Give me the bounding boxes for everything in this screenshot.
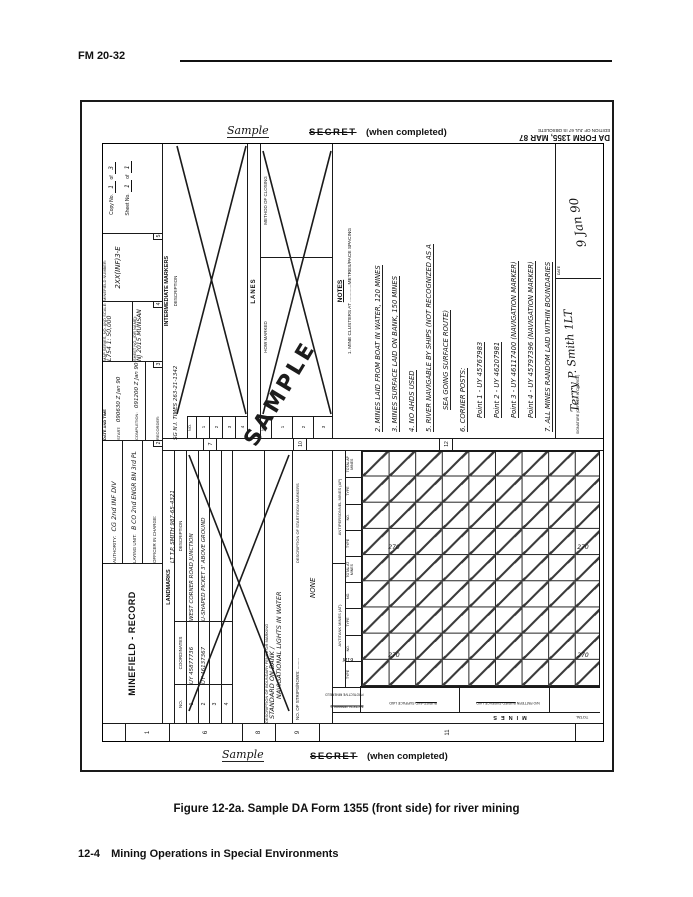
copy-label: Copy No. — [109, 194, 115, 215]
band-sec-1: 1 — [126, 724, 170, 741]
completion-label: COMPLETION: — [134, 412, 139, 440]
mines-col-label: TYPE — [346, 477, 361, 503]
mines-stub-cell-2: N/O PATTERN BURIED SURFACE LAID — [473, 698, 543, 704]
page-footer: 12-4 Mining Operations in Special Enviro… — [78, 848, 338, 860]
lanes-header: LANES — [248, 144, 261, 438]
minefield-number-label: MINEFIELD NUMBER: — [103, 234, 107, 301]
note-line: 7. ALL MINES RANDOM LAID WITHIN BOUNDARI… — [545, 262, 553, 432]
mines-col-label: TYPE — [346, 530, 361, 556]
landmark-row: 2 UY 46137367 U-SHAPED PICKET 3' ABOVE G… — [199, 451, 211, 723]
lanes-col-method: METHOD OF CLOSING — [261, 144, 333, 258]
boundary-section: DESCRIPTION OF BOUNDARY FENCE OR MARKING… — [265, 451, 293, 723]
start-row-markers-label: DESCRIPTION OF START/ROW MARKERS — [296, 483, 300, 563]
note-line: Point 4 - UY 45797396 (NAVIGATION MARKER… — [528, 261, 536, 418]
sheet-label: Sheet No. — [125, 193, 131, 215]
form-title: MINEFIELD - RECORD — [127, 564, 137, 723]
recorder-label: RECORDER: — [155, 416, 160, 440]
completion-value: 091200 Z Jan 90 — [134, 362, 140, 408]
boundary-value-2: NAVIGATIONAL LIGHTS IN WATER — [276, 451, 283, 699]
mines-stub-header-2: PROTECTIVE MINEFIELD — [332, 691, 364, 696]
mines-type-value: M19 — [339, 659, 357, 669]
lane-row-no: 2 — [292, 416, 313, 438]
sec-2-number: 2 — [153, 440, 163, 447]
signature-strip: Terry P. Smith 1LT SIGNATURE (OFFICER IN… — [555, 144, 600, 438]
intermediate-markers-header: INTERMEDIATE MARKERS — [165, 144, 171, 438]
mines-col-label: TOTAL AT MINES — [346, 556, 361, 582]
landmark-row-coordinates: UY 45877736 — [187, 621, 199, 684]
landmark-row-no: 4 — [222, 684, 234, 723]
sec-5-number: 5 — [153, 233, 163, 240]
copy-total: 3 — [108, 162, 116, 174]
when-completed-bottom: (when completed) — [367, 751, 448, 762]
mines-col-label: NO. — [346, 504, 361, 530]
form-title-cell: MINEFIELD - RECORD — [103, 563, 163, 723]
header-rule — [180, 60, 612, 62]
intermediate-markers-col-description: DESCRIPTION — [174, 144, 179, 438]
sec-7-number: 7 — [203, 438, 217, 450]
landmark-row-no: 1 — [187, 684, 199, 723]
secret-stamp-bottom: SECRET — [310, 751, 358, 762]
footer-title: Mining Operations in Special Environment… — [111, 848, 338, 860]
note-line: Point 1 - UY 45767983 — [477, 342, 485, 418]
doc-reference: FM 20-32 — [78, 50, 125, 62]
laying-unit-value: B CO 2nd ENGR BN 3rd PL — [131, 451, 138, 530]
mines-col-label: TYPE — [346, 608, 361, 634]
authority-cell: AUTHORITY: CG 2nd INF DIV LAYING UNIT: B… — [103, 440, 163, 563]
note-line: 2. MINES LAID FROM BOAT IN WATER, 120 MI… — [375, 265, 383, 432]
mines-col-label: NO. — [346, 582, 361, 608]
mines-stub-header-1: TACTICAL MINEFIELD — [332, 703, 364, 708]
note-line: 6. CORNER POSTS: — [460, 368, 468, 432]
date-cell: DATE 9 Jan 90 — [556, 144, 601, 278]
mines-total-value: 270 — [571, 653, 595, 665]
strips-section: NO. OF STRIPS/ROWS: ......... DESCRIPTIO… — [293, 451, 333, 723]
mines-col-label: TOTAL AP MINES — [346, 451, 361, 477]
mines-stub-col: TACTICAL MINEFIELD PROTECTIVE MINEFIELD … — [333, 687, 600, 713]
landmarks-header: LANDMARKS — [163, 451, 175, 723]
landmarks-col-coordinates: COORDINATES — [175, 621, 187, 684]
note-line: Point 2 - UY 46207981 — [494, 342, 502, 418]
landmark-row-no: 2 — [199, 684, 211, 723]
mines-value: 270 — [382, 545, 406, 557]
da-form-number: DA FORM 1355, MAR 87 — [470, 133, 610, 142]
minefield-number-value: 2XX(INF)3-E — [115, 234, 122, 301]
landmark-row-no: 3 — [210, 684, 222, 723]
landmarks-col-description: DESCRIPTION — [175, 451, 187, 621]
landmark-row: 3 — [210, 451, 222, 723]
marker-row-no: 1 — [196, 416, 209, 438]
map-series-value: L754 1: 50,000 — [107, 301, 113, 361]
notes-lines: 2. MINES LAID FROM BOAT IN WATER, 120 MI… — [367, 148, 554, 432]
mines-section: MINES TOTAL TACTICAL MINEFIELD PROTECTIV… — [333, 451, 600, 723]
mines-stub-cell-1: BURIED AND SURFACE LAID — [378, 698, 448, 704]
note-line: SEA GOING SURFACE ROUTE) — [443, 310, 451, 410]
marker-row-no: 2 — [209, 416, 222, 438]
band-sec-11: 11 — [320, 724, 576, 741]
mines-group-ap: ANTIPERSONNEL MINES (AP) — [333, 451, 346, 563]
notes-section: NOTES 1. MINE CLUSTERS AT .............M… — [333, 144, 600, 438]
authority-value: CG 2nd INF DIV — [110, 481, 118, 531]
datetime-cell: DATE AND TIME START: 090630 Z Jan 90 COM… — [103, 361, 163, 440]
sample-stamp-top: Sample — [227, 124, 269, 138]
band-sec-6: 6 — [170, 724, 243, 741]
note-line: 5. RIVER NAVIGABLE BY SHIPS (NOT RECOGNI… — [426, 244, 434, 432]
note-line: 3. MINES SURFACE LAID ON BANK, 150 MINES — [392, 276, 400, 432]
sheet-total: 1 — [124, 161, 132, 173]
start-label: START: — [116, 427, 121, 440]
signature-cell: Terry P. Smith 1LT SIGNATURE (OFFICER IN… — [556, 278, 601, 438]
note-line: 4. NO AHDS USED — [409, 370, 417, 432]
figure-caption: Figure 12-2a. Sample DA Form 1355 (front… — [0, 803, 693, 815]
band-sec-8: 8 — [243, 724, 276, 741]
when-completed-top: (when completed) — [366, 127, 447, 138]
sec-3-number: 3 — [153, 361, 163, 368]
marker-row-no: 3 — [222, 416, 235, 438]
da-form-id-block: DA FORM 1355, MAR 87 EDITION OF JUL 67 I… — [470, 118, 610, 142]
landmark-row-coordinates: UY 46137367 — [199, 621, 211, 684]
da-form-1355: 1 6 8 9 11 MINEFIELD - RECORD AUTHORITY:… — [102, 143, 604, 742]
start-value: 090630 Z Jan 90 — [116, 377, 122, 423]
map-series-cell: MAP SERIES, NO. AND SCALE: L754 1: 50,00… — [103, 301, 163, 361]
landmark-row-description: WEST CORNER ROAD JUNCTION — [187, 451, 199, 621]
band-sec-9: 9 — [276, 724, 320, 741]
notes-printed-line: 1. MINE CLUSTERS AT .............METRES/… — [348, 144, 353, 438]
unused-band — [233, 451, 265, 723]
mines-col-label: NO. — [346, 635, 361, 661]
landmarks-col-no: NO. — [175, 684, 187, 723]
intermediate-markers-col-no: NO. — [188, 417, 192, 438]
sheet-of-label: of — [125, 175, 131, 179]
copy-sheet-cell: Copy No. 1 of 3 Sheet No. 1 of 1 — [103, 144, 163, 233]
sec-4-number: 4 — [153, 301, 163, 308]
mines-header-band: ANTITANK MINES (AT) ANTIPERSONNEL MINES … — [333, 451, 361, 687]
intermediate-markers-section: INTERMEDIATE MARKERS DESCRIPTION NO. 1 2… — [163, 144, 248, 438]
footer-page-number: 12-4 — [78, 848, 100, 860]
strips-value: NONE — [310, 578, 317, 598]
section-number-band: 1 6 8 9 11 — [103, 723, 603, 741]
secret-stamp-top: SECRET — [309, 127, 357, 138]
notes-header: NOTES — [338, 144, 345, 438]
landmark-row: 4 — [222, 451, 234, 723]
laying-unit-label: LAYING UNIT: — [132, 534, 137, 563]
lane-row-no: 3 — [313, 416, 333, 438]
landmark-row: 1 UY 45877736 WEST CORNER ROAD JUNCTION — [187, 451, 199, 723]
sheet-value: 1 — [124, 180, 132, 192]
manual-page: { "page": { "doc_ref": "FM 20-32", "capt… — [0, 0, 693, 897]
copy-value: 1 — [108, 181, 116, 193]
sec-10-number: 10 — [293, 438, 307, 450]
da-form-edition: EDITION OF JUL 67 IS OBSOLETE — [470, 128, 610, 133]
note-line: Point 3 - UY 46117400 (NAVIGATION MARKER… — [511, 261, 519, 418]
figure-box: Sample SECRET (when completed) DA FORM 1… — [80, 100, 614, 772]
sheet-name-value: NJ 2015 MUNSAN — [137, 301, 143, 361]
oic-label: OFFICER IN CHARGE: — [152, 516, 157, 563]
sec-12-number: 12 — [439, 438, 453, 450]
strips-label: NO. OF STRIPS/ROWS: ......... — [296, 658, 301, 720]
mines-value: 270 — [382, 653, 406, 665]
minefield-number-cell: MINEFIELD NUMBER: 2XX(INF)3-E — [103, 233, 163, 301]
form-header-row: MINEFIELD - RECORD AUTHORITY: CG 2nd INF… — [103, 144, 163, 723]
middle-divider: 7 10 12 — [163, 438, 603, 451]
mines-total-value: 270 — [571, 545, 595, 557]
sample-stamp-bottom: Sample — [222, 748, 264, 762]
copy-of-label: of — [109, 175, 115, 179]
landmark-row-description: U-SHAPED PICKET 3' ABOVE GROUND — [199, 451, 211, 621]
landmarks-section: LANDMARKS NO. COORDINATES DESCRIPTION 1 … — [163, 451, 233, 723]
authority-label: AUTHORITY: — [112, 536, 117, 563]
